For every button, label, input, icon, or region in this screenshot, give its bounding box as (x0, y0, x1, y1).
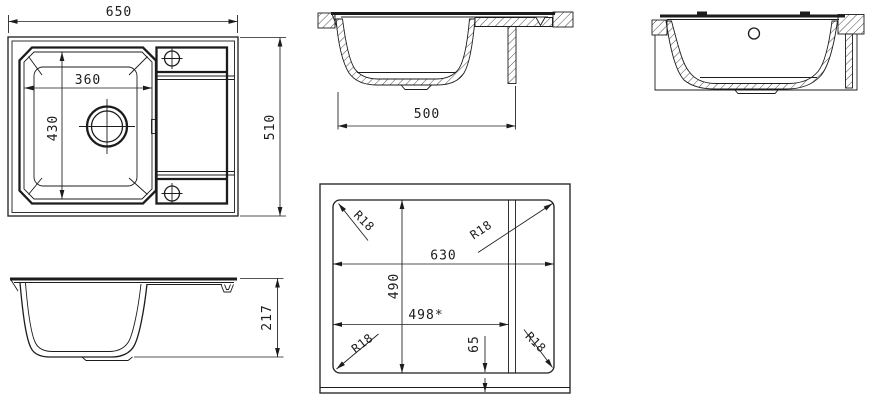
radius-callout-top-left: R18 (339, 204, 378, 241)
section2-overflow-hole (749, 28, 760, 39)
section-support-wall (508, 27, 516, 84)
plan-drain (79, 99, 135, 154)
side-section-view (652, 12, 864, 94)
dim-bowl-depth-label: 430 (46, 115, 61, 141)
dim-front-edge-offset-label: 65 (467, 335, 482, 353)
section-bowl-wall (336, 19, 475, 85)
countertop-block-right (553, 12, 573, 27)
dim-alt-cutout-length: 498* (333, 308, 509, 325)
front-section-view: 500 (318, 12, 573, 130)
section2-clip-left (697, 12, 707, 17)
dim-alt-cutout-length-label: 498* (408, 308, 443, 323)
dim-bowl-width: 360 (25, 73, 153, 88)
dim-bowl-depth: 430 (46, 52, 62, 199)
dim-cutout-length-label: 630 (430, 249, 456, 264)
dim-overall-depth-label: 510 (263, 114, 278, 140)
dim-bowl-width-label: 360 (75, 73, 101, 88)
plan-drainboard-steps-thin (157, 76, 235, 175)
elevation-right-lip (221, 285, 234, 293)
section2-bowl-wall (666, 21, 838, 89)
section2-clip-right (800, 12, 810, 17)
radius-label-bottom-left: R18 (349, 331, 376, 356)
elevation-left-lip (11, 280, 18, 291)
cutout-template-view: 630 490 498* 65 R18 R18 R18 (320, 184, 570, 393)
section-drain-boss (401, 85, 432, 90)
section2-support-wall (846, 34, 853, 88)
dim-overall-height-label: 217 (260, 304, 275, 330)
dim-cutout-width-label: 500 (414, 107, 440, 122)
plan-view: 650 510 360 430 (8, 5, 286, 216)
plan-drainboard-steps-thick (157, 72, 228, 179)
radius-callout-bottom-left: R18 (337, 331, 379, 369)
plan-faucet-hole-bottom (162, 183, 183, 204)
dim-cutout-depth: 490 (387, 200, 402, 373)
dim-overall-width-label: 650 (106, 5, 132, 20)
section-drainboard-slab (475, 18, 553, 27)
elevation-bowl-inner (26, 283, 142, 352)
dim-front-edge-offset: 65 (467, 335, 485, 392)
dim-cutout-depth-label: 490 (387, 273, 402, 299)
dim-cutout-width: 500 (338, 86, 516, 130)
elevation-bowl-outer (20, 283, 147, 357)
dim-cutout-length: 630 (333, 249, 554, 265)
radius-label-top-right: R18 (467, 218, 494, 243)
radius-label-top-left: R18 (351, 208, 377, 234)
side-elevation-view: 217 (10, 279, 284, 361)
radius-callout-top-right: R18 (467, 204, 552, 253)
drawing-canvas: 650 510 360 430 (0, 0, 880, 410)
dim-overall-width: 650 (9, 5, 238, 33)
plan-faucet-hole-top (162, 48, 183, 69)
dim-overall-height: 217 (134, 279, 284, 358)
countertop-block-left-2 (652, 20, 667, 35)
dim-overall-depth: 510 (240, 38, 286, 217)
template-alt-cut-lines (509, 200, 516, 373)
radius-callout-bottom-right: R18 (522, 329, 552, 367)
technical-drawing-sheet: 650 510 360 430 (0, 0, 880, 410)
